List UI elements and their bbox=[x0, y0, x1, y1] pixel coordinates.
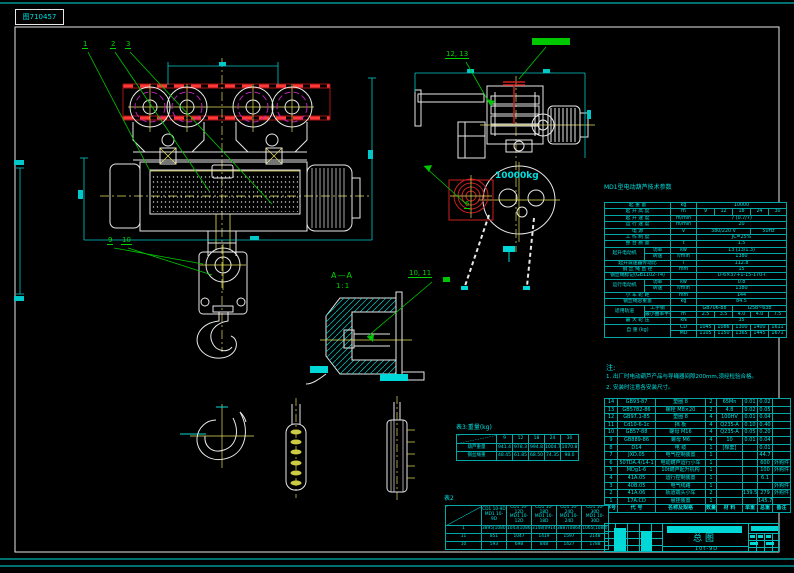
table-cell: 100HV bbox=[717, 414, 743, 422]
table-cell: 螺母 M6 bbox=[656, 436, 706, 444]
table-cell: CD1 10-24D MD1 10-24D bbox=[557, 506, 582, 526]
spare-parts bbox=[180, 396, 415, 500]
table-cell: 轨道端头小车 bbox=[656, 490, 706, 498]
table-cell: 0.01 bbox=[743, 399, 758, 407]
drawing-title: 总图 bbox=[693, 535, 717, 544]
table-cell bbox=[743, 474, 758, 482]
table-cell: 3895(1080) bbox=[482, 525, 507, 533]
table-cell: 葫芦重量 bbox=[457, 443, 497, 452]
table-cell: 外购件 bbox=[773, 467, 791, 475]
drawing-number-stamp: 图710457 bbox=[15, 9, 64, 25]
table-cell: 1597 bbox=[557, 533, 582, 541]
table-cell: 垫圈 8 bbox=[656, 399, 706, 407]
table-cell: 6.1 bbox=[758, 474, 773, 482]
table-cell: 自 重 (kg) bbox=[605, 324, 671, 337]
table-cell: 68.50 bbox=[529, 452, 545, 461]
table-cell: 悬挂装置 bbox=[656, 497, 706, 505]
table-cell: 11 bbox=[605, 421, 618, 429]
load-rating-label: 10000kg bbox=[495, 172, 539, 181]
table-cell: 41A.06 bbox=[618, 490, 656, 498]
table-cell: 44.7 bbox=[758, 452, 773, 460]
table-cell: 1 bbox=[706, 452, 717, 460]
table-cell: Q235-A bbox=[717, 421, 743, 429]
table-cell bbox=[446, 506, 482, 526]
table-cell: 4 bbox=[706, 436, 717, 444]
table-cell: GB5782-86 bbox=[618, 406, 656, 414]
table-cell: 单重 bbox=[743, 505, 758, 513]
table-cell: 外购件 bbox=[773, 490, 791, 498]
table-cell bbox=[773, 429, 791, 437]
callout-9: 9 bbox=[107, 237, 113, 245]
section-scale: 1:1 bbox=[336, 282, 350, 290]
table-cell: 1043(1086) bbox=[507, 525, 532, 533]
table-cell: 61.85 bbox=[513, 452, 529, 461]
table-cell: 0.01 bbox=[743, 414, 758, 422]
table-cell: 12 bbox=[513, 435, 529, 444]
table-cell: 2 bbox=[706, 406, 717, 414]
table-cell bbox=[773, 436, 791, 444]
table-cell: 4 bbox=[706, 421, 717, 429]
table-cell: [橡套] bbox=[717, 444, 743, 452]
table-cell: 0.02 bbox=[743, 406, 758, 414]
table-cell: 50TDA.4/14-1 bbox=[618, 459, 656, 467]
cad-drawing-sheet: 图710457 1 2 3 9 10 6 10, 11 12, 13 A—A 1… bbox=[0, 0, 794, 573]
table-cell: 电动葫芦运行小车 bbox=[656, 459, 706, 467]
table-cell: 3887(0864) bbox=[557, 525, 582, 533]
table-cell: 1300 bbox=[733, 324, 751, 330]
table-cell: 41A.05 bbox=[618, 474, 656, 482]
table-cell: 运行电动机 bbox=[605, 279, 645, 292]
table-cell: 48.45 bbox=[497, 452, 513, 461]
table-cell: 1365 bbox=[733, 331, 751, 337]
spec-table: 起 重 量kg10000起 升 高 度m912182430起 升 速 度m/mi… bbox=[604, 202, 787, 338]
table-cell bbox=[773, 399, 791, 407]
table-cell: 1004.7 bbox=[545, 443, 561, 452]
table-cell bbox=[717, 482, 743, 490]
table-cell: 1 bbox=[706, 497, 717, 505]
table-cell: 1 bbox=[605, 497, 618, 505]
table-cell: 30 bbox=[561, 435, 579, 444]
table-cell: 4.8 bbox=[717, 406, 743, 414]
callout-10: 10 bbox=[121, 237, 132, 245]
table-cell: 0.01 bbox=[758, 444, 773, 452]
table-cell: 外购件 bbox=[773, 459, 791, 467]
table-cell: 9 bbox=[605, 436, 618, 444]
table-cell: 1445 bbox=[751, 331, 769, 337]
table-cell: 0.20 bbox=[758, 429, 773, 437]
table-cell: 10 bbox=[446, 541, 482, 549]
table-cell: 螺栓 M8×20 bbox=[656, 406, 706, 414]
table-cell: 978.3 bbox=[513, 443, 529, 452]
table-cell: 1419 bbox=[532, 533, 557, 541]
table-cell: 起升电动机 bbox=[605, 247, 645, 260]
callout-10-11: 10, 11 bbox=[408, 270, 432, 278]
signature-fill bbox=[641, 531, 652, 551]
table-cell: 1611 bbox=[769, 324, 787, 330]
table-cell: GB97.1-85 bbox=[618, 414, 656, 422]
note-line: 1. 出厂时电动葫芦产品与导绳器间隙200mm,须经检验合格。 bbox=[606, 372, 788, 383]
rail-beam bbox=[123, 84, 330, 120]
spec-table-title: MD1型电动葫芦技术参数 bbox=[604, 185, 672, 191]
table-cell: 代 号 bbox=[618, 505, 656, 513]
table-cell: 593 bbox=[482, 541, 507, 549]
table-cell: 1671 bbox=[769, 331, 787, 337]
table-cell: 18 bbox=[529, 435, 545, 444]
table-cell: 4 bbox=[706, 414, 717, 422]
table-cell: 13 bbox=[605, 406, 618, 414]
table-cell: 1427 bbox=[557, 541, 582, 549]
table-cell: 994.8 bbox=[529, 443, 545, 452]
table-cell bbox=[743, 482, 758, 490]
table-cell: 电 缆 bbox=[656, 444, 706, 452]
table-cell: 1086 bbox=[715, 324, 733, 330]
table-cell: 4 bbox=[706, 429, 717, 437]
table-cell: Cd10-6-1c bbox=[618, 421, 656, 429]
table-cell: 名称及规格 bbox=[656, 505, 706, 513]
table-cell: 1105 bbox=[697, 331, 715, 337]
table-cell: 0.05 bbox=[758, 406, 773, 414]
table-cell bbox=[773, 474, 791, 482]
note-line: 2. 安装时注意各安装尺寸。 bbox=[606, 383, 788, 394]
table-cell: JXD.05 bbox=[618, 452, 656, 460]
bom-table: 14GB93-87垫圈 8265Mn0.010.0213GB5782-86螺栓 … bbox=[604, 398, 791, 513]
table-cell: 最小曲率半径 bbox=[645, 311, 671, 317]
table-cell: 65Mn bbox=[717, 399, 743, 407]
table-cell: 钢丝绳标记(GB1102-74) bbox=[605, 273, 671, 279]
section-label: A—A bbox=[331, 272, 353, 280]
table-cell: 1 bbox=[706, 474, 717, 482]
table-cell bbox=[717, 459, 743, 467]
table-cell: 11 bbox=[446, 533, 482, 541]
table-cell: 0.40 bbox=[758, 421, 773, 429]
table-cell: 数量 bbox=[706, 505, 717, 513]
hook-bottom-view bbox=[449, 140, 560, 290]
table-cell: GB889-86 bbox=[618, 436, 656, 444]
table-cell bbox=[743, 459, 758, 467]
stamp-text: 图710457 bbox=[23, 14, 57, 21]
table-cell: 145.7 bbox=[758, 497, 773, 505]
dimension-lines bbox=[14, 62, 591, 301]
table-cell: 材 料 bbox=[717, 505, 743, 513]
side-view bbox=[415, 76, 595, 252]
table-cell: 电气控制装置 bbox=[656, 452, 706, 460]
table-cell: 运行控制装置 bbox=[656, 474, 706, 482]
table-cell bbox=[773, 452, 791, 460]
table-cell: 1 bbox=[706, 444, 717, 452]
weight-table: 912182430葫芦重量941.4978.3994.81004.71070.8… bbox=[456, 434, 579, 461]
table-cell: 1150 bbox=[715, 331, 733, 337]
table-cell: 3 bbox=[605, 482, 618, 490]
table-cell: 8 bbox=[605, 444, 618, 452]
table-cell: 0.04 bbox=[758, 436, 773, 444]
table-cell: 7 bbox=[605, 452, 618, 460]
table-cell: 2 bbox=[605, 490, 618, 498]
table-cell: MDg1-6 bbox=[618, 467, 656, 475]
table-cell: 10 bbox=[717, 436, 743, 444]
signature-fill bbox=[614, 528, 626, 551]
table-cell: 1 bbox=[706, 467, 717, 475]
table-cell: 0.05 bbox=[743, 429, 758, 437]
table-cell: CD1 10-18D MD1 10-18D bbox=[532, 506, 557, 526]
table-cell bbox=[743, 444, 758, 452]
table-cell bbox=[457, 435, 497, 444]
callout-3: 3 bbox=[125, 41, 131, 49]
table-cell: 698 bbox=[507, 541, 532, 549]
table-cell bbox=[717, 497, 743, 505]
table-cell: 4 bbox=[605, 474, 618, 482]
table-cell: 0.10 bbox=[743, 421, 758, 429]
table-cell: D14 bbox=[618, 444, 656, 452]
callout-12-13: 12, 13 bbox=[445, 51, 469, 59]
table-cell: 挡 板 bbox=[656, 421, 706, 429]
table-cell: 17A.CD bbox=[618, 497, 656, 505]
table-cell: CD1 10-9D MD1 10-9D bbox=[482, 506, 507, 526]
hoist-body bbox=[100, 162, 370, 256]
table-cell bbox=[758, 482, 773, 490]
table-cell: 适用轨道 bbox=[605, 305, 645, 318]
table-cell: MD bbox=[671, 331, 697, 337]
table-cell bbox=[773, 421, 791, 429]
table-cell: 100 bbox=[758, 467, 773, 475]
callout-6: 6 bbox=[464, 201, 470, 209]
table-cell: 2 bbox=[706, 490, 717, 498]
table-cell: 1045 bbox=[697, 324, 715, 330]
notes: 注: 1. 出厂时电动葫芦产品与导绳器间隙200mm,须经检验合格。 2. 安装… bbox=[606, 364, 788, 394]
callout-2: 2 bbox=[110, 41, 116, 49]
table-cell: 40B.05 bbox=[618, 482, 656, 490]
table-cell: CD1 10-12D MD1 10-12D bbox=[507, 506, 532, 526]
detail-a-a bbox=[306, 292, 424, 384]
table-cell: 钢丝绳重 bbox=[457, 452, 497, 461]
model-table: CD1 10-9D MD1 10-9DCD1 10-12D MD1 10-12D… bbox=[445, 505, 609, 550]
table-cell: 10 bbox=[605, 429, 618, 437]
table-cell: 10t葫芦起升机构 bbox=[656, 467, 706, 475]
table-cell bbox=[717, 467, 743, 475]
table-cell: 电气线路 bbox=[656, 482, 706, 490]
table-cell bbox=[743, 452, 758, 460]
table-cell: 备注 bbox=[773, 505, 791, 513]
table-cell: 外购件 bbox=[773, 482, 791, 490]
table-cell: 1070.8 bbox=[561, 443, 579, 452]
table-cell: 139.5 bbox=[743, 490, 758, 498]
model-table-caption: 表2 bbox=[444, 496, 454, 502]
table-cell: 总重 bbox=[758, 505, 773, 513]
scale-bar bbox=[751, 526, 778, 531]
table-cell: 279 bbox=[758, 490, 773, 498]
drawing-model: 10t-9D bbox=[695, 547, 718, 552]
table-cell: 0.01 bbox=[743, 436, 758, 444]
table-cell: 5 bbox=[605, 467, 618, 475]
weight-table-caption: 表3:重量(kg) bbox=[456, 425, 492, 431]
table-cell: 1 bbox=[446, 525, 482, 533]
table-cell: 1400 bbox=[751, 324, 769, 330]
table-cell: 848 bbox=[532, 541, 557, 549]
table-cell: 1047 bbox=[507, 533, 532, 541]
table-cell bbox=[717, 474, 743, 482]
table-cell bbox=[773, 406, 791, 414]
table-cell: 2 bbox=[706, 399, 717, 407]
table-cell: 6 bbox=[605, 459, 618, 467]
table-cell: 12 bbox=[605, 414, 618, 422]
table-cell: 0.04 bbox=[758, 414, 773, 422]
table-cell: 941.4 bbox=[497, 443, 513, 452]
table-cell: 3148(0914) bbox=[532, 525, 557, 533]
table-cell: 14 bbox=[605, 399, 618, 407]
table-cell: 螺母 M16 bbox=[656, 429, 706, 437]
table-cell: 1 bbox=[706, 459, 717, 467]
table-cell: 600 bbox=[758, 459, 773, 467]
table-cell: GB57-88 bbox=[618, 429, 656, 437]
product-name-bar bbox=[667, 526, 742, 533]
callout-1: 1 bbox=[82, 41, 88, 49]
table-cell: 1 bbox=[706, 482, 717, 490]
table-cell: 24 bbox=[545, 435, 561, 444]
table-cell: 851 bbox=[482, 533, 507, 541]
table-cell bbox=[773, 414, 791, 422]
table-cell bbox=[773, 444, 791, 452]
table-cell bbox=[743, 467, 758, 475]
table-cell: 9 bbox=[497, 435, 513, 444]
table-cell: 74.35 bbox=[545, 452, 561, 461]
table-cell: 98.0 bbox=[561, 452, 579, 461]
table-cell bbox=[773, 497, 791, 505]
table-cell bbox=[717, 452, 743, 460]
table-cell: 0.02 bbox=[758, 399, 773, 407]
notes-heading: 注: bbox=[606, 364, 788, 372]
table-cell: 垫圈 8 bbox=[656, 414, 706, 422]
table-cell bbox=[743, 497, 758, 505]
table-cell: GB93-87 bbox=[618, 399, 656, 407]
table-cell: Q235-A bbox=[717, 429, 743, 437]
title-block: 总图 10t-9D bbox=[604, 523, 779, 552]
table-cell bbox=[717, 490, 743, 498]
